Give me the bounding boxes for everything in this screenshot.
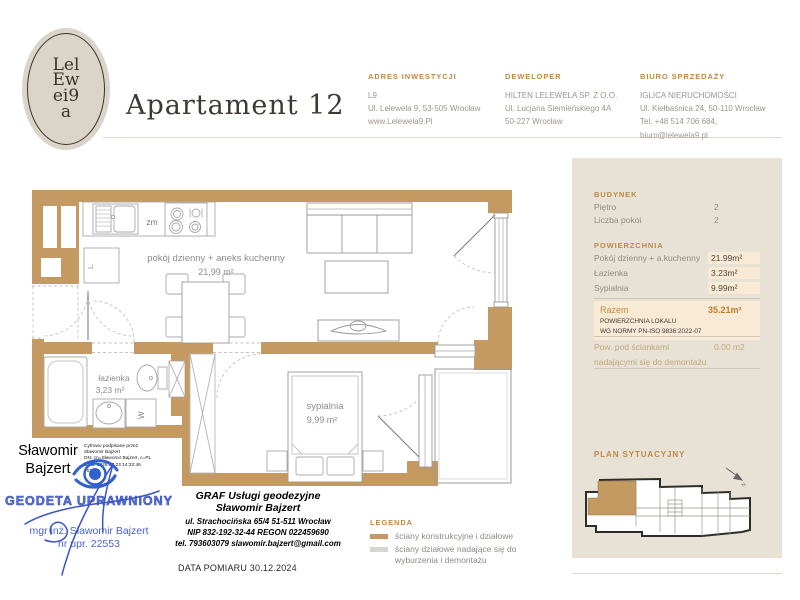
budynek-heading: BUDYNEK (594, 190, 760, 199)
bedroom-balcony-door (419, 375, 432, 467)
removable-wall-swatch (370, 547, 388, 552)
header-line: Ul. Kiełbaśnica 24, 50-110 Wrocław (640, 102, 785, 115)
situational-plan: N (580, 464, 774, 550)
north-arrow-icon: N (726, 468, 747, 489)
legend: LEGENDA ściany konstrukcyjne i działowe … (370, 518, 575, 566)
powierzchnia-heading: POWIERZCHNIA (594, 241, 760, 250)
razem-note: POWIERZCHNIA LOKALU WG NORMY PN-ISO 9836… (600, 317, 754, 336)
stove (165, 203, 207, 236)
legend-label: ściany działowe nadające się do wyburzen… (395, 544, 555, 566)
bed (288, 372, 362, 482)
demontaz-label: Pow. pod ściankami (594, 340, 714, 355)
area-row: Łazienka 3.23m² (594, 268, 760, 279)
header-line: Ul. Lelewela 9, 53-505 Wrocław (368, 102, 502, 115)
row-value: 2 (714, 215, 760, 225)
brand-logo: Lel Ew ei9 a (22, 28, 110, 150)
living-balcony-door (435, 345, 475, 357)
razem-label: Razem (600, 305, 708, 315)
row-label: Łazienka (594, 268, 708, 278)
header-line: IGLICA NIERUCHOMOŚCI (640, 89, 785, 102)
area-row: Pokój dzienny + a.kuchenny 21.99m² (594, 253, 760, 264)
header-line: www.Lelewela9.Pl (368, 115, 502, 128)
header-line: L9 (368, 89, 502, 102)
logo-line: a (61, 105, 71, 121)
svg-text:N: N (741, 481, 748, 488)
header-col-adres: ADRES INWESTYCJI L9 Ul. Lelewela 9, 53-5… (368, 72, 502, 129)
sidebar-divider (594, 368, 760, 369)
bedroom-label: sypialnia (307, 401, 345, 412)
living-room-window (494, 213, 508, 307)
highlighted-unit (588, 481, 636, 515)
legend-item: ściany konstrukcyjne i działowe (370, 531, 575, 542)
header-line: 50-227 Wrocław (505, 115, 639, 128)
surveyor-company-block: GRAF Usługi geodezyjne Sławomir Bajzert … (163, 490, 353, 550)
sidebar-divider (594, 336, 760, 337)
bedroom-area: 9,99 m² (307, 415, 338, 425)
area-row: Sypialnia 9.99m² (594, 283, 760, 294)
legend-item: ściany działowe nadające się do wyburzen… (370, 544, 575, 566)
row-value: 3.23m² (708, 267, 760, 279)
living-room-label: pokój dzienny + aneks kuchenny (147, 253, 285, 264)
tv-stand (318, 320, 399, 341)
building-outline (586, 479, 750, 536)
bathtub (44, 357, 87, 427)
washing-machine: W (126, 399, 156, 427)
row-label: Piętro (594, 202, 714, 212)
company-line: ul. Strachocińska 65/4 51-511 Wrocław (163, 517, 353, 528)
toilet (137, 365, 167, 391)
row-value: 9.99m² (708, 282, 760, 294)
header-col-biuro: BIURO SPRZEDAŻY IGLICA NIERUCHOMOŚCI Ul.… (640, 72, 785, 142)
razem-value: 35.21m² (708, 305, 754, 315)
budynek-row: Liczba pokoi 2 (594, 215, 760, 225)
nightstand (267, 451, 287, 471)
nightstand (363, 451, 383, 471)
washing-machine-label: W (137, 411, 146, 419)
fridge: L. (84, 248, 119, 283)
header-line: Ul. Lucjana Siemieńskiego 4A (505, 102, 639, 115)
row-value: 2 (714, 202, 760, 212)
sofa (307, 203, 412, 253)
structural-wall-swatch (370, 534, 388, 539)
company-line: NIP 832-192-32-44 REGON 022459690 (163, 528, 353, 539)
info-sidebar: BUDYNEK Piętro 2 Liczba pokoi 2 POWIERZC… (572, 158, 782, 558)
coffee-table (325, 261, 388, 293)
company-line: GRAF Usługi geodezyjne (163, 490, 353, 502)
razem-row: Razem 35.21m² (600, 305, 754, 315)
row-label: Sypialnia (594, 283, 708, 293)
demontaz-block: Pow. pod ściankami 0.00 m2 nadającymi si… (594, 340, 760, 371)
company-line: Sławomir Bajzert (163, 502, 353, 514)
living-room-area: 21,99 m² (198, 267, 234, 277)
wall-hatch-niche (169, 361, 185, 397)
sidebar-divider (594, 298, 760, 299)
floorplan-sheet: Lel Ew ei9 a Apartament 12 ADRES INWESTY… (0, 0, 800, 600)
dining-set (166, 274, 245, 343)
razem-box: Razem 35.21m² POWIERZCHNIA LOKALU WG NOR… (594, 301, 760, 340)
bathroom-label: łazienka (98, 373, 129, 383)
header-line: Tel. +48 514 706 684, biuro@lelewela9.pl (640, 115, 785, 141)
header-col-heading: DEWELOPER (505, 72, 639, 81)
row-label: Pokój dzienny + a.kuchenny (594, 253, 708, 263)
handwritten-signature (15, 458, 170, 576)
header-col-heading: BIURO SPRZEDAŻY (640, 72, 785, 81)
installation-shaft (190, 354, 215, 473)
washbasin (93, 399, 125, 428)
demontaz-value: 0.00 m2 (714, 340, 760, 355)
measurement-date: DATA POMIARU 30.12.2024 (178, 563, 297, 573)
legend-label: ściany konstrukcyjne i działowe (395, 531, 513, 542)
header-col-heading: ADRES INWESTYCJI (368, 72, 502, 81)
page-title: Apartament 12 (126, 90, 345, 121)
brand-logo-ring: Lel Ew ei9 a (27, 33, 105, 145)
balcony (435, 369, 511, 483)
bathroom-area: 3,23 m² (96, 385, 125, 395)
header-line: HILTEN LELEWELA SP. Z O.O. (505, 89, 639, 102)
row-label: Liczba pokoi (594, 215, 714, 225)
row-value: 21.99m² (708, 252, 760, 264)
header-col-deweloper: DEWELOPER HILTEN LELEWELA SP. Z O.O. Ul.… (505, 72, 639, 129)
plan-sytuacyjny-heading: PLAN SYTUACYJNY (594, 450, 760, 459)
sidebar-bottom-rule (572, 573, 782, 574)
fridge-label: L. (88, 263, 95, 269)
dishwasher-label: zm (146, 217, 157, 227)
budynek-row: Piętro 2 (594, 202, 760, 212)
company-line: tel. 793603079 slawomir.bajzert@gmail.co… (163, 539, 353, 550)
legend-heading: LEGENDA (370, 518, 575, 527)
